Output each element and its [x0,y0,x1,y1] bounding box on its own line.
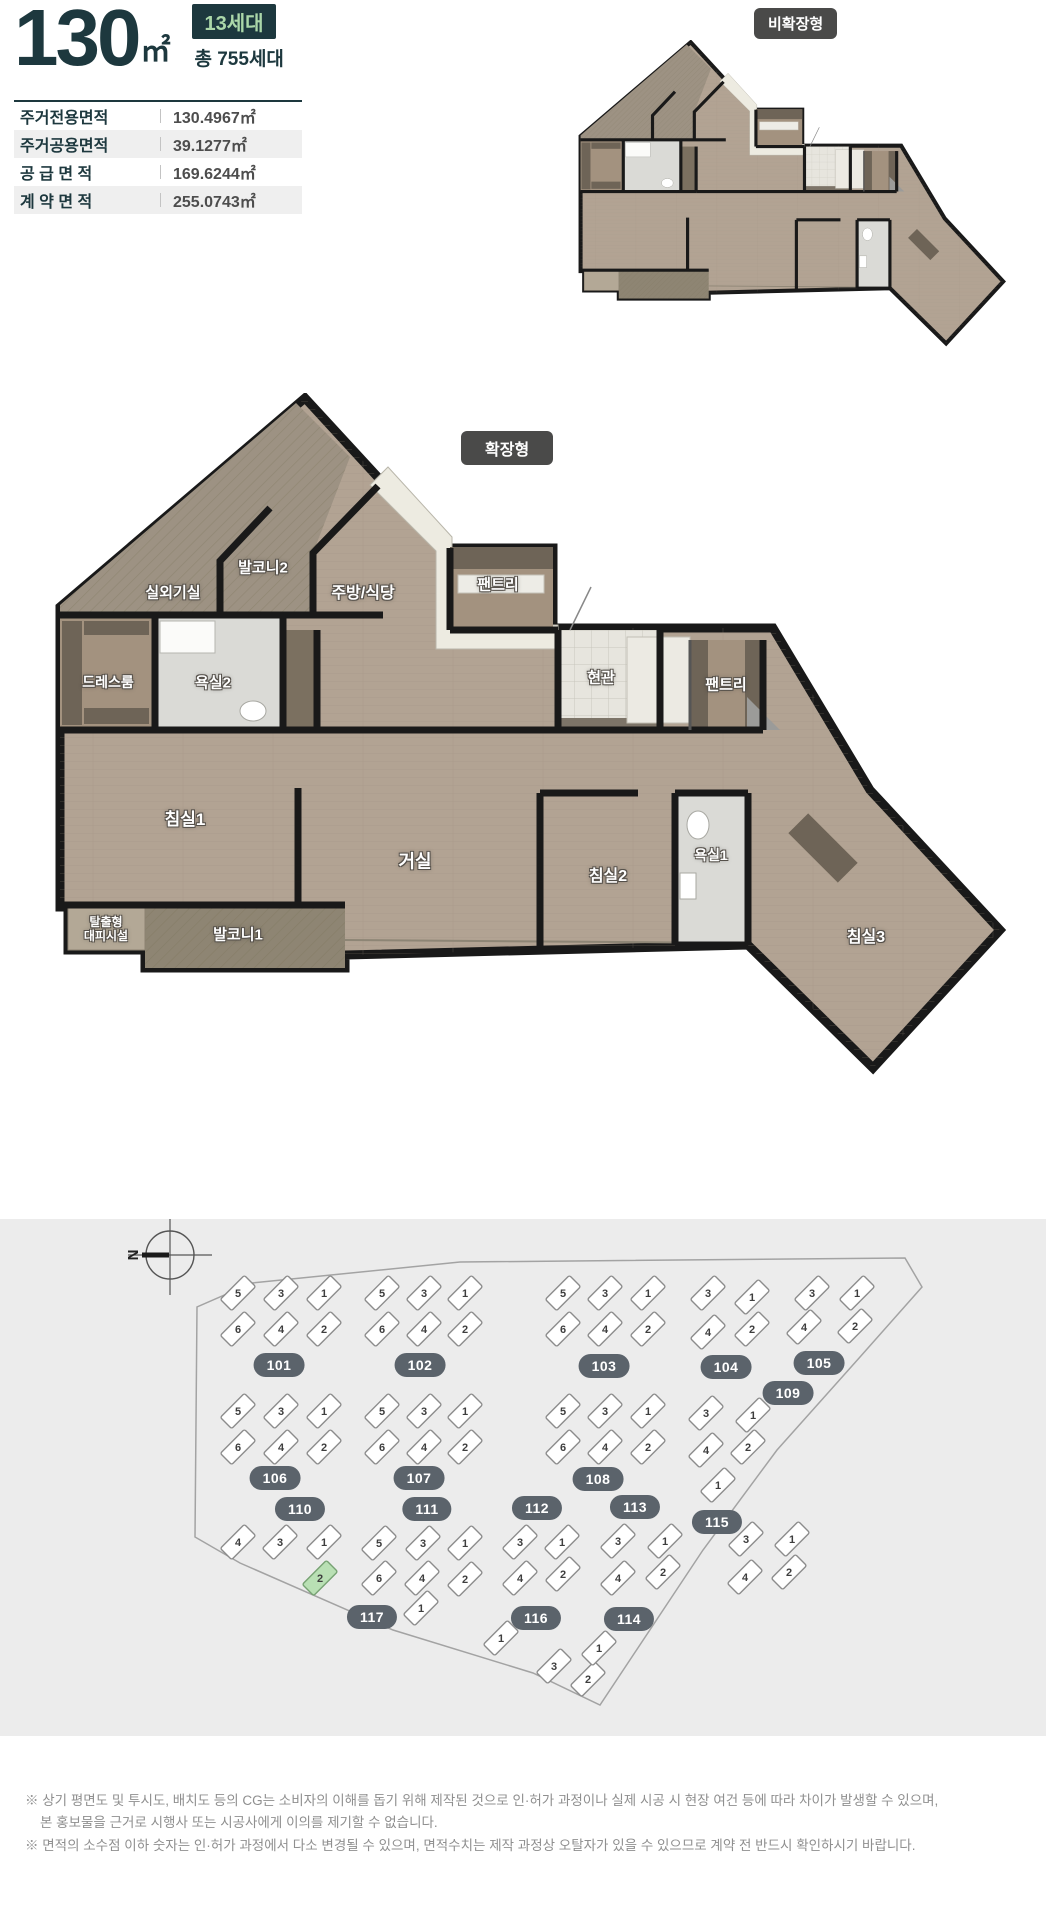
area-table: 주거전용면적130.4967㎡주거공용면적39.1277㎡공 급 면 적169.… [14,100,302,214]
building-badge-112: 112 [512,1496,562,1520]
svg-text:2: 2 [462,1324,468,1336]
area-value: 130.4967㎡ [173,104,256,128]
building-badge-102: 102 [395,1353,446,1377]
divider [160,165,161,179]
svg-text:2: 2 [560,1569,566,1581]
site-building-unit: 4 [587,1311,622,1346]
svg-text:1: 1 [854,1288,860,1300]
room-label: 팬트리 [705,676,746,693]
area-row: 주거전용면적130.4967㎡ [14,102,302,130]
svg-text:5: 5 [379,1406,385,1418]
compass-icon: N [125,1219,212,1295]
svg-text:2: 2 [462,1442,468,1454]
site-building-unit: 3 [587,1393,622,1428]
svg-text:3: 3 [421,1288,427,1300]
room-label: 팬트리 [477,576,518,593]
svg-text:3: 3 [420,1538,426,1550]
svg-text:5: 5 [379,1288,385,1300]
site-building-unit: 1 [630,1275,665,1310]
room-label: 거실 [398,852,431,873]
svg-text:2: 2 [749,1324,755,1336]
room-label: 발코니1 [213,926,263,943]
site-building-unit: 6 [361,1560,396,1595]
building-badge-106: 106 [250,1466,301,1490]
site-building-unit: 3 [600,1523,635,1558]
svg-text:2: 2 [321,1442,327,1454]
site-building-unit: 2 [570,1661,605,1696]
svg-text:1: 1 [750,1410,756,1422]
svg-text:4: 4 [703,1445,710,1457]
site-building-unit: 2 [545,1556,580,1591]
building-badge-108: 108 [573,1467,624,1491]
area-value: 39.1277㎡ [173,132,247,156]
building-badge-115: 115 [692,1510,742,1534]
area-row: 공 급 면 적169.6244㎡ [14,158,302,186]
site-building-unit: 2 [734,1311,769,1346]
site-building-unit: 4 [690,1314,725,1349]
site-building-unit: 6 [364,1311,399,1346]
site-building-unit: 5 [364,1393,399,1428]
svg-text:6: 6 [560,1324,566,1336]
site-building-unit: 3 [502,1524,537,1559]
site-building-unit: 5 [364,1275,399,1310]
site-building-unit: 4 [220,1524,255,1559]
site-building-unit: 2 [302,1560,337,1595]
site-building-unit: 2 [771,1554,806,1589]
area-label: 계 약 면 적 [20,188,148,212]
site-building-unit: 5 [220,1275,255,1310]
size-unit: ㎡ [140,26,170,70]
area-label: 공 급 면 적 [20,160,148,184]
site-building-unit: 3 [688,1395,723,1430]
area-value: 169.6244㎡ [173,160,256,184]
households-badge: 13세대 [192,4,275,39]
svg-text:4: 4 [742,1572,749,1584]
footer-disclaimer: ※ 상기 평면도 및 투시도, 배치도 등의 CG는 소비자의 이해를 돕기 위… [25,1790,1025,1857]
non-expanded-badge: 비확장형 [754,8,837,39]
size-number: 130 [14,0,138,76]
svg-text:2: 2 [317,1573,323,1585]
building-badge-117: 117 [347,1605,397,1629]
building-badge-105: 105 [794,1351,845,1375]
area-value: 255.0743㎡ [173,188,256,212]
room-label: 욕실2 [195,674,231,691]
svg-text:3: 3 [809,1288,815,1300]
room-label: 실외기실 [145,584,200,601]
site-building-unit: 5 [545,1275,580,1310]
svg-text:3: 3 [743,1534,749,1546]
room-label: 침실3 [847,929,885,947]
expanded-floor-plan: 실외기실발코니2주방/식당팬트리드레스룸욕실2현관팬트리침실1거실침실2욕실1침… [48,393,1008,1078]
room-label: 현관 [587,669,615,686]
svg-text:1: 1 [789,1534,795,1546]
site-building-unit: 3 [536,1648,571,1683]
svg-text:1: 1 [645,1406,651,1418]
svg-text:4: 4 [705,1327,712,1339]
room-label: 주방/식당 [331,585,394,603]
site-building-unit: 2 [630,1311,665,1346]
svg-text:2: 2 [786,1567,792,1579]
building-badge-103: 103 [579,1354,630,1378]
svg-text:1: 1 [462,1406,468,1418]
expanded-floor-plan-drawing [48,393,1008,1078]
site-plan: N 53164253164253164231423142314215316425… [0,1219,1046,1736]
building-badge-101: 101 [254,1353,305,1377]
svg-text:1: 1 [462,1538,468,1550]
room-label: 욕실1 [694,847,728,863]
svg-text:3: 3 [421,1406,427,1418]
svg-text:6: 6 [379,1442,385,1454]
site-building-unit: 1 [581,1630,616,1665]
site-building-unit: 1 [544,1524,579,1559]
site-building-unit: 4 [406,1429,441,1464]
svg-text:3: 3 [602,1406,608,1418]
room-label: 발코니2 [238,559,288,576]
divider [160,193,161,207]
svg-text:3: 3 [278,1288,284,1300]
site-building-unit: 1 [734,1279,769,1314]
building-badge-114: 114 [604,1607,654,1631]
svg-text:5: 5 [376,1538,382,1550]
svg-text:2: 2 [462,1574,468,1586]
site-building-unit: 4 [786,1309,821,1344]
svg-text:4: 4 [421,1324,428,1336]
site-building-unit: 3 [262,1524,297,1559]
site-building-unit: 1 [306,1524,341,1559]
svg-text:1: 1 [418,1603,424,1615]
site-building-unit: 6 [364,1429,399,1464]
divider [160,109,161,123]
svg-text:2: 2 [585,1674,591,1686]
svg-text:1: 1 [559,1537,565,1549]
header-right: 13세대 총 755세대 [192,4,283,71]
site-building-unit: 2 [447,1429,482,1464]
svg-text:1: 1 [321,1537,327,1549]
site-building-unit: 4 [263,1429,298,1464]
site-building-unit: 5 [220,1393,255,1428]
svg-text:4: 4 [421,1442,428,1454]
svg-text:5: 5 [235,1406,241,1418]
site-building-unit: 3 [405,1525,440,1560]
area-label: 주거전용면적 [20,104,148,128]
svg-text:3: 3 [278,1406,284,1418]
site-building-unit: 1 [306,1393,341,1428]
area-label: 주거공용면적 [20,132,148,156]
svg-text:6: 6 [560,1442,566,1454]
building-badge-111: 111 [402,1497,451,1521]
svg-text:4: 4 [602,1324,609,1336]
site-building-unit: 2 [306,1429,341,1464]
svg-text:2: 2 [645,1324,651,1336]
svg-text:2: 2 [660,1567,666,1579]
site-building-unit: 4 [404,1560,439,1595]
svg-text:3: 3 [703,1408,709,1420]
compass-north-label: N [125,1250,142,1261]
site-building-unit: 1 [647,1523,682,1558]
svg-text:1: 1 [662,1536,668,1548]
site-building-unit: 6 [545,1311,580,1346]
svg-text:1: 1 [462,1288,468,1300]
total-households: 총 755세대 [192,44,283,71]
site-building-unit: 2 [837,1308,872,1343]
svg-text:4: 4 [615,1573,622,1585]
site-building-unit: 2 [447,1311,482,1346]
svg-text:6: 6 [235,1324,241,1336]
site-building-unit: 2 [630,1429,665,1464]
site-building-unit: 4 [688,1432,723,1467]
site-building-unit: 3 [690,1275,725,1310]
site-building-unit: 1 [839,1275,874,1310]
svg-text:1: 1 [321,1288,327,1300]
svg-text:5: 5 [560,1288,566,1300]
site-building-unit: 1 [447,1525,482,1560]
svg-text:6: 6 [376,1573,382,1585]
site-building-unit: 1 [630,1393,665,1428]
svg-text:6: 6 [235,1442,241,1454]
site-building-unit: 5 [545,1393,580,1428]
site-building-unit: 3 [263,1393,298,1428]
svg-text:1: 1 [645,1288,651,1300]
svg-text:1: 1 [749,1292,755,1304]
site-building-unit: 6 [545,1429,580,1464]
building-badge-110: 110 [275,1497,325,1521]
site-building-unit: 2 [306,1311,341,1346]
site-building-unit: 1 [403,1590,438,1625]
svg-text:4: 4 [801,1322,808,1334]
building-badge-113: 113 [610,1495,660,1519]
site-building-unit: 4 [600,1560,635,1595]
svg-text:2: 2 [321,1324,327,1336]
disclaimer-line-3: ※ 면적의 소수점 이하 숫자는 인·허가 과정에서 다소 변경될 수 있으며,… [25,1835,1025,1857]
svg-text:3: 3 [705,1288,711,1300]
svg-text:4: 4 [517,1573,524,1585]
site-building-unit: 6 [220,1429,255,1464]
svg-text:4: 4 [419,1573,426,1585]
svg-text:6: 6 [379,1324,385,1336]
site-building-unit: 1 [447,1275,482,1310]
site-building-unit: 1 [735,1397,770,1432]
site-building-unit: 1 [447,1393,482,1428]
non-expanded-floor-plan [575,40,1007,348]
svg-text:1: 1 [596,1643,602,1655]
svg-text:4: 4 [278,1442,285,1454]
site-building-unit: 4 [406,1311,441,1346]
svg-text:2: 2 [745,1442,751,1454]
site-building-unit: 4 [727,1559,762,1594]
svg-text:5: 5 [235,1288,241,1300]
site-building-unit: 4 [502,1560,537,1595]
svg-text:3: 3 [277,1537,283,1549]
site-building-unit: 2 [730,1429,765,1464]
site-building-unit: 3 [794,1275,829,1310]
site-building-unit: 2 [447,1561,482,1596]
building-badge-109: 109 [763,1381,814,1405]
svg-text:1: 1 [715,1480,721,1492]
site-building-unit: 5 [361,1525,396,1560]
building-badge-116: 116 [511,1606,561,1630]
room-label: 드레스룸 [82,674,134,690]
site-building-unit: 1 [700,1467,735,1502]
svg-text:5: 5 [560,1406,566,1418]
room-label: 침실2 [589,868,627,886]
disclaimer-line-1: ※ 상기 평면도 및 투시도, 배치도 등의 CG는 소비자의 이해를 돕기 위… [25,1790,1025,1812]
divider [160,137,161,151]
disclaimer-line-2: 본 홍보물을 근거로 시행사 또는 시공사에게 이의를 제기할 수 없습니다. [25,1812,1025,1834]
svg-text:3: 3 [517,1537,523,1549]
building-badge-107: 107 [394,1466,445,1490]
svg-text:3: 3 [602,1288,608,1300]
area-row: 계 약 면 적255.0743㎡ [14,186,302,214]
room-label: 탈출형 대피시설 [84,916,128,944]
site-building-unit: 2 [645,1554,680,1589]
site-building-unit: 3 [406,1393,441,1428]
brochure-page: 130 ㎡ 13세대 총 755세대 주거전용면적130.4967㎡주거공용면적… [0,0,1046,1920]
site-plan-drawing: N 53164253164253164231423142314215316425… [0,1219,1046,1736]
building-badge-104: 104 [701,1355,752,1379]
area-row: 주거공용면적39.1277㎡ [14,130,302,158]
site-building-unit: 1 [774,1521,809,1556]
site-building-unit: 3 [406,1275,441,1310]
unit-size-title: 130 ㎡ [14,0,170,76]
svg-text:4: 4 [278,1324,285,1336]
svg-text:1: 1 [498,1633,504,1645]
site-building-unit: 4 [263,1311,298,1346]
room-label: 침실1 [165,810,206,830]
header: 130 ㎡ 13세대 총 755세대 [14,0,284,76]
site-building-unit: 3 [587,1275,622,1310]
svg-text:2: 2 [645,1442,651,1454]
svg-text:3: 3 [551,1661,557,1673]
site-building-unit: 6 [220,1311,255,1346]
svg-text:2: 2 [852,1321,858,1333]
site-building-unit: 4 [587,1429,622,1464]
svg-text:4: 4 [235,1537,242,1549]
svg-text:4: 4 [602,1442,609,1454]
svg-text:1: 1 [321,1406,327,1418]
site-building-unit: 1 [306,1275,341,1310]
expanded-badge: 확장형 [461,431,553,465]
svg-text:3: 3 [615,1536,621,1548]
